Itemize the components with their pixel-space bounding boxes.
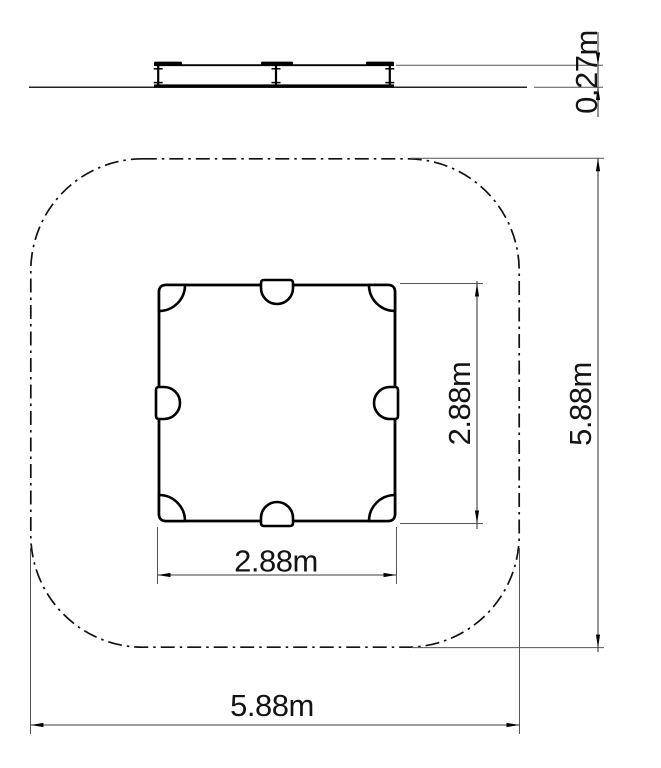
arrowhead <box>158 573 171 577</box>
edge-seat-top <box>261 280 293 304</box>
dim-label-frame-width: 2.88m <box>234 544 318 579</box>
dim-label-frame-depth: 2.88m <box>442 362 477 446</box>
arrowhead <box>596 635 600 648</box>
edge-seat-bottom <box>261 502 293 526</box>
dim-safety-depth: 5.88m <box>410 158 604 652</box>
frame-posts <box>154 65 395 86</box>
arrowhead <box>475 284 479 297</box>
dim-label-frame-height: 0.27m <box>569 30 604 114</box>
edge-seat-left <box>156 387 180 419</box>
arrowhead <box>507 723 520 727</box>
edge-seat-right <box>374 387 398 419</box>
side-seat-pad-middle <box>261 62 293 66</box>
dim-frame-depth: 2.88m <box>400 281 483 529</box>
drawing-canvas: 0.27m 2.88m <box>0 0 661 768</box>
arrowhead <box>384 573 397 577</box>
drawing-sheet: 0.27m 2.88m <box>0 0 661 768</box>
elevation-view: 0.27m <box>29 30 604 117</box>
dim-frame-width: 2.88m <box>158 527 397 584</box>
post-flanges <box>154 69 395 83</box>
arrowhead <box>475 511 479 524</box>
arrowhead <box>596 158 600 171</box>
side-seat-pad-right <box>366 62 394 66</box>
dim-label-safety-depth: 5.88m <box>563 362 598 446</box>
frame-bottom-beam <box>154 84 394 87</box>
dim-frame-height: 0.27m <box>396 30 604 117</box>
side-seat-pad-left <box>154 62 182 66</box>
sandbox-frame <box>159 285 395 521</box>
arrowhead <box>31 723 44 727</box>
dim-label-safety-width: 5.88m <box>230 688 314 723</box>
plan-view: 2.88m 2.88m 5.88m 5.88m <box>31 158 605 734</box>
